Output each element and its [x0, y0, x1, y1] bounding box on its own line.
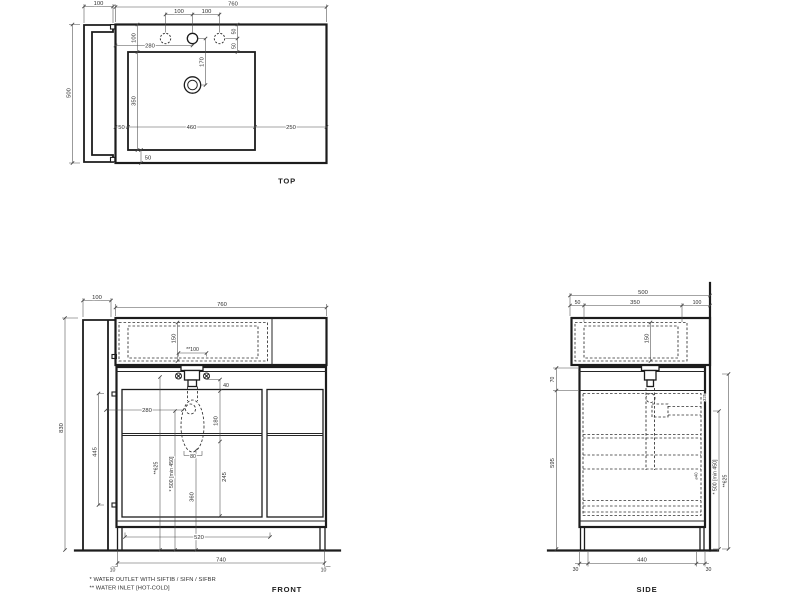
dim-front-trap-from-left: 280	[142, 408, 152, 414]
dim-top-total-width: 760	[228, 1, 238, 7]
dim-side-foot-front: 30	[706, 567, 712, 573]
basin-outline	[128, 52, 255, 150]
dim-side-front-offset: 100	[693, 300, 702, 306]
wall-panel-outline	[83, 320, 115, 550]
door-right	[267, 390, 323, 518]
dim-top-tap-from-left: 280	[145, 44, 155, 50]
footnote-water-outlet: * WATER OUTLET WITH SIFTIB / SIFN / SIFB…	[90, 577, 216, 583]
pipe-joint-hidden	[646, 394, 655, 403]
dim-lines	[69, 4, 327, 163]
top-view: 100 760 500 100 100 100 350 280 170 50 5…	[66, 1, 328, 186]
cabinet-outline	[117, 367, 327, 527]
siphon-joint-hidden	[186, 404, 196, 414]
top-view-label: TOP	[278, 177, 296, 186]
dim-side-back-offset: 50	[575, 300, 581, 306]
dim-ticks	[555, 294, 730, 565]
basin-hidden-outer	[119, 323, 268, 362]
tap-hole	[187, 33, 197, 43]
dim-front-outlet-height: * 500 [min 450]	[169, 456, 175, 491]
wall-bracket-outline	[84, 25, 113, 162]
bracket-connector	[111, 157, 115, 161]
dim-front-trap-height: 360	[190, 492, 196, 502]
drain-tail-side	[647, 380, 654, 387]
dim-front-panel-width: 100	[92, 295, 102, 301]
water-inlet-left	[176, 373, 182, 379]
optional-hole-right	[214, 33, 224, 43]
optional-hole-left	[160, 33, 170, 43]
dim-front-hinge-spacing: 445	[92, 447, 98, 457]
dim-front-total-width: 760	[217, 302, 227, 308]
dim-front-basin-inner-depth: 150	[171, 334, 177, 344]
drain-flange	[181, 366, 203, 371]
dim-top-tap-to-drain: 170	[200, 57, 206, 67]
dim-side-pipe-detail-lower: ⌀40	[694, 472, 699, 480]
side-view: 500 50 350 100 150 70 595 * 500 [min 450…	[548, 283, 730, 594]
dim-front-drain-drop: 180	[213, 416, 219, 426]
bracket-connector	[111, 25, 115, 29]
dim-side-base-depth: 440	[637, 558, 647, 564]
dim-front-inlet-drop: 40	[223, 383, 229, 389]
trap-pipe-hidden	[188, 387, 198, 402]
pipes-hidden	[583, 388, 701, 512]
dim-top-hole-offset-upper: 50	[232, 29, 238, 35]
footnotes: * WATER OUTLET WITH SIFTIB / SIFN / SIFB…	[90, 577, 216, 592]
dim-front-base-inset-left: 10	[110, 567, 116, 573]
dim-top-total-depth: 500	[66, 88, 72, 98]
dim-side-cabinet-height: 595	[550, 458, 556, 468]
plinth-side	[581, 527, 705, 550]
side-view-label: SIDE	[637, 585, 658, 594]
dim-side-basin-inner-depth: 150	[644, 334, 650, 344]
front-view-label: FRONT	[272, 585, 302, 594]
dim-side-basin-depth: 350	[630, 300, 640, 306]
dim-top-hole-pitch-right: 100	[202, 9, 212, 15]
dim-side-outlet-height: * 500 [min 450]	[713, 459, 719, 494]
water-inlet-right	[204, 373, 210, 379]
dim-side-total-depth: 500	[638, 290, 648, 296]
basin-hidden-outer-side	[575, 323, 687, 362]
dim-side-foot-back: 30	[573, 567, 579, 573]
dim-side-counter-gap: 70	[550, 377, 556, 383]
dim-ticks	[71, 5, 328, 165]
dim-top-hole-pitch-left: 100	[174, 9, 184, 15]
dim-top-edge-to-basin: 100	[132, 33, 138, 43]
drain-tail	[188, 380, 197, 387]
dim-front-trap-width: 80	[190, 454, 196, 460]
drain-body-side	[645, 371, 657, 381]
plinth-front	[118, 527, 326, 550]
dim-side-inlet-height: **625	[722, 475, 728, 488]
washbasin-technical-drawing: 100 760 500 100 100 100 350 280 170 50 5…	[0, 0, 800, 600]
dim-front-plinth-width: 520	[194, 535, 204, 541]
dim-side-pipe-detail-upper: 325	[702, 393, 707, 401]
dim-top-basin-margin-bottom: 50	[145, 156, 151, 162]
dim-front-base-inset-right: 10	[321, 567, 327, 573]
drain-body	[185, 371, 200, 381]
basin-hidden-inner-side	[584, 326, 678, 358]
dim-front-base-width: 740	[216, 557, 226, 563]
footnote-water-inlet: ** WATER INLET [HOT-COLD]	[90, 586, 170, 592]
dim-top-hole-offset-lower: 50	[232, 43, 238, 49]
drain-flange-side	[642, 366, 660, 371]
dim-top-basin-depth: 350	[132, 96, 138, 106]
drain-inner	[188, 80, 198, 90]
drawer-hidden	[583, 394, 701, 516]
dim-front-inlet-spacing: **100	[186, 347, 199, 353]
siphon-hidden	[181, 400, 204, 452]
dim-top-panel-width: 100	[94, 1, 104, 7]
front-view: 100 760 150 **100 40 280 180 830 445 **6…	[59, 295, 340, 594]
dim-top-counter-right: 250	[286, 125, 296, 131]
dim-top-basin-margin-left: 50	[118, 125, 124, 131]
dim-top-basin-width: 460	[187, 125, 197, 131]
dim-front-inlet-height: **625	[154, 462, 160, 475]
dim-front-overall-height: 830	[59, 423, 65, 433]
technical-drawing-page: 100 760 500 100 100 100 350 280 170 50 5…	[0, 0, 800, 600]
dim-front-drop-to-bottom: 245	[222, 472, 228, 482]
drain-outer	[184, 77, 200, 93]
